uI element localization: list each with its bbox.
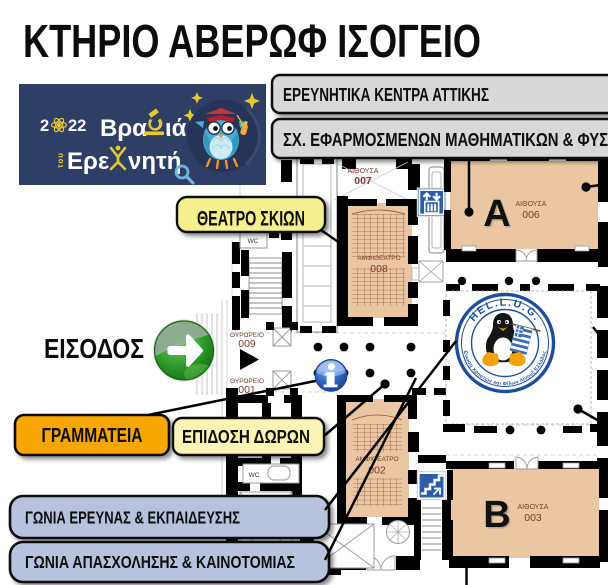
svg-text:ΕΙΣΟΔΟΣ: ΕΙΣΟΔΟΣ [44,333,144,364]
svg-text:ΑΙΘΟΥΣΑ: ΑΙΘΟΥΣΑ [516,201,547,208]
svg-text:009: 009 [238,338,256,350]
svg-text:007: 007 [354,175,372,187]
svg-text:ΓΩΝΙΑ ΑΠΑΣΧΟΛΗΣΗΣ & ΚΑΙΝΟΤΟΜΙΑ: ΓΩΝΙΑ ΑΠΑΣΧΟΛΗΣΗΣ & ΚΑΙΝΟΤΟΜΙΑΣ [25,552,295,572]
svg-text:ΚΤΗΡΙΟ ΑΒΕΡΩΦ ΙΣΟΓΕΙΟ: ΚΤΗΡΙΟ ΑΒΕΡΩΦ ΙΣΟΓΕΙΟ [23,15,481,67]
svg-text:του: του [56,152,65,168]
svg-text:Βρα: Βρα [100,115,147,142]
svg-text:ιά: ιά [165,115,187,142]
svg-text:ΑΜΦΙΘΕΑΤΡΟ: ΑΜΦΙΘΕΑΤΡΟ [357,255,400,262]
svg-text:22: 22 [68,117,86,135]
svg-text:Ερε: Ερε [67,148,109,175]
svg-text:003: 003 [524,512,542,524]
svg-text:ΕΡΕΥΝΗΤΙΚΑ ΚΕΝΤΡΑ ΑΤΤΙΚΗΣ: ΕΡΕΥΝΗΤΙΚΑ ΚΕΝΤΡΑ ΑΤΤΙΚΗΣ [283,85,489,105]
svg-text:ΘΕΑΤΡΟ ΣΚΙΩΝ: ΘΕΑΤΡΟ ΣΚΙΩΝ [197,207,305,231]
svg-text:008: 008 [370,263,388,275]
svg-text:ΣΧ. ΕΦΑΡΜΟΣΜΕΝΩΝ ΜΑΘΗΜΑΤΙΚΩΝ &: ΣΧ. ΕΦΑΡΜΟΣΜΕΝΩΝ ΜΑΘΗΜΑΤΙΚΩΝ & ΦΥΣΙΚ [283,130,608,150]
svg-text:2: 2 [40,117,49,135]
svg-text:A: A [483,193,510,235]
svg-text:ΕΠΙΔΟΣΗ ΔΩΡΩΝ: ΕΠΙΔΟΣΗ ΔΩΡΩΝ [182,427,310,447]
svg-text:ΑΙΘΟΥΣΑ: ΑΙΘΟΥΣΑ [518,504,549,511]
svg-text:WC: WC [249,472,260,479]
svg-text:ΑΙΘΟΥΣΑ: ΑΙΘΟΥΣΑ [348,168,379,175]
svg-text:WC: WC [248,238,259,245]
svg-text:B: B [483,494,510,536]
svg-text:006: 006 [522,209,540,221]
svg-text:ΓΩΝΙΑ ΕΡΕΥΝΑΣ & ΕΚΠΑΙΔΕΥΣΗΣ: ΓΩΝΙΑ ΕΡΕΥΝΑΣ & ΕΚΠΑΙΔΕΥΣΗΣ [25,508,240,528]
svg-text:ΓΡΑΜΜΑΤΕΙΑ: ΓΡΑΜΜΑΤΕΙΑ [42,425,143,447]
svg-text:νητή: νητή [128,148,181,175]
